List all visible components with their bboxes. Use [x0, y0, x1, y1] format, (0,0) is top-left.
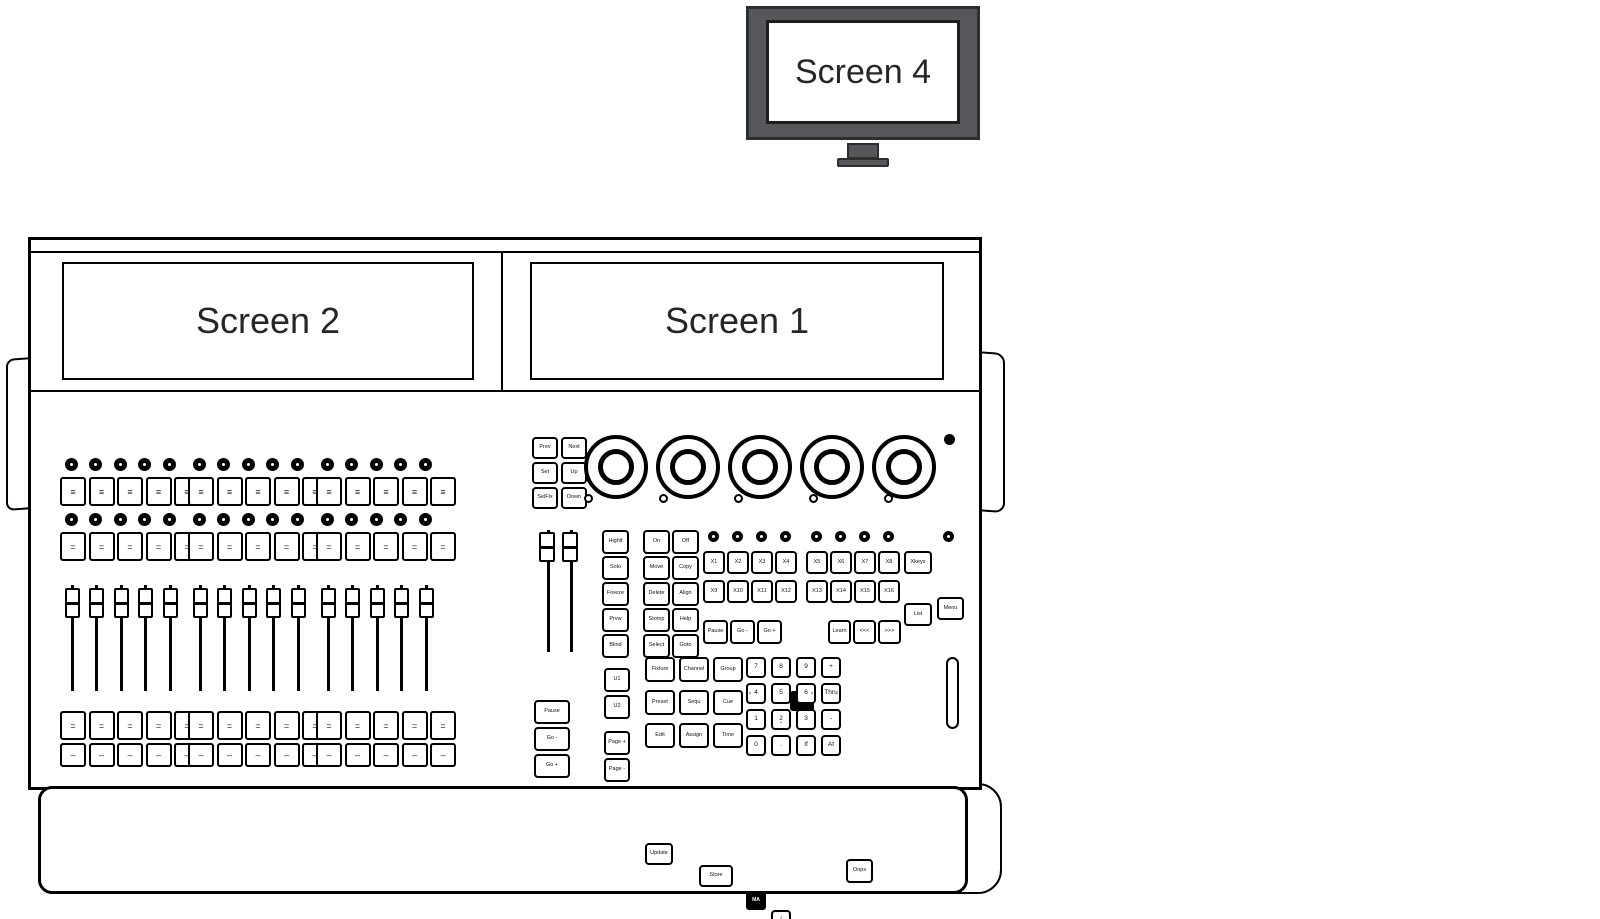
monitor-stand-base: [837, 158, 889, 167]
executor-knob-row-a: [65, 458, 176, 471]
executor-key[interactable]: =: [146, 532, 172, 561]
executor-key[interactable]: =: [60, 711, 86, 740]
external-monitor-label: Screen 4: [795, 53, 931, 92]
executor-knob[interactable]: [138, 458, 151, 471]
menu-key[interactable]: Menu: [937, 597, 964, 620]
fader-column: [134, 585, 159, 691]
encoder-inner-ring[interactable]: [598, 449, 634, 485]
mini-display-lines-icon: =: [284, 542, 289, 552]
master-go-key-pause[interactable]: Pause: [534, 700, 570, 724]
executor-led: [835, 531, 846, 542]
numpad-key-5[interactable]: 5: [771, 683, 791, 704]
executor-key-row-b: =====: [188, 532, 328, 561]
executor-knob[interactable]: [394, 513, 407, 526]
fader[interactable]: [291, 588, 306, 618]
command-key-stomp[interactable]: Stomp: [643, 608, 670, 632]
console-top-edge-line: [28, 251, 982, 253]
executor-key-row-c: =====: [60, 711, 200, 740]
sequence-key-go[interactable]: Go -: [730, 620, 755, 644]
mini-display-lines-icon: =: [355, 721, 360, 731]
executor-knob[interactable]: [163, 513, 176, 526]
executor-led: [732, 531, 743, 542]
mini-display-lines-icon: –: [227, 750, 232, 760]
command-key-blind[interactable]: Blind: [602, 634, 629, 658]
fader-column: [316, 585, 341, 691]
executor-knob-row-a: [321, 458, 432, 471]
executor-key[interactable]: =: [430, 532, 456, 561]
mini-display-lines-icon: =: [127, 542, 132, 552]
executor-key[interactable]: ≡: [89, 477, 115, 506]
x-key-x16[interactable]: X16: [878, 580, 900, 603]
fader-group-2: ≡≡≡≡≡==========–––––: [188, 455, 311, 769]
executor-key[interactable]: =: [89, 532, 115, 561]
page-key-page[interactable]: Page -: [604, 758, 630, 782]
numpad-key-blank[interactable]: .: [771, 735, 791, 756]
console-armrest: [38, 786, 968, 894]
executor-key[interactable]: ≡: [373, 477, 399, 506]
fader[interactable]: [242, 588, 257, 618]
update-key[interactable]: Update: [645, 843, 673, 865]
encoder-row: [584, 435, 936, 499]
executor-key[interactable]: –: [245, 743, 271, 767]
command-key-freeze[interactable]: Freeze: [602, 582, 629, 606]
executor-knob[interactable]: [419, 458, 432, 471]
executor-key[interactable]: ≡: [316, 477, 342, 506]
executor-key[interactable]: =: [146, 711, 172, 740]
executor-key[interactable]: =: [245, 532, 271, 561]
executor-key[interactable]: –: [345, 743, 371, 767]
dual-encoder-1[interactable]: [584, 435, 648, 499]
executor-knob[interactable]: [217, 458, 230, 471]
mini-display-lines-icon: =: [156, 721, 161, 731]
mini-display-lines-icon: –: [326, 750, 331, 760]
executor-led: [859, 531, 870, 542]
mini-display-lines-icon: =: [99, 721, 104, 731]
fader-group-3: ≡≡≡≡≡==========–––––: [316, 455, 439, 769]
command-key-goto[interactable]: Goto: [672, 634, 699, 658]
mini-display-lines-icon: ≡: [99, 487, 104, 497]
master-fader-b[interactable]: [562, 532, 578, 562]
numpad-key-9[interactable]: 9: [796, 657, 816, 678]
executor-key[interactable]: =: [345, 711, 371, 740]
executor-key[interactable]: ≡: [430, 477, 456, 506]
executor-knob[interactable]: [394, 458, 407, 471]
nav-key-selfix[interactable]: SelFix: [532, 487, 558, 509]
mini-display-lines-icon: –: [99, 750, 104, 760]
executor-key[interactable]: =: [373, 711, 399, 740]
mini-display-lines-icon: =: [198, 542, 203, 552]
encoder-inner-ring[interactable]: [814, 449, 850, 485]
numpad-key-8[interactable]: 8ˆ: [771, 657, 791, 678]
x-key-x11[interactable]: X11: [751, 580, 773, 603]
dual-encoder-4[interactable]: [800, 435, 864, 499]
executor-key[interactable]: =: [89, 711, 115, 740]
object-key-sequ[interactable]: Sequ: [679, 690, 709, 715]
master-go-key-go[interactable]: Go +: [534, 754, 570, 778]
executor-key[interactable]: –: [274, 743, 300, 767]
fader[interactable]: [217, 588, 232, 618]
fader[interactable]: [370, 588, 385, 618]
lighting-console-diagram: Screen 4 Screen 2 Screen 1 PrevNextSetUp…: [0, 0, 1600, 919]
encoder-nav-block: PrevNextSetUpSelFixDown: [532, 437, 587, 509]
x-key-x1[interactable]: X1: [703, 551, 725, 574]
xkeys-key[interactable]: Xkeys: [904, 551, 932, 574]
ma-key[interactable]: MA: [746, 891, 766, 910]
executor-key[interactable]: =: [245, 711, 271, 740]
fader[interactable]: [114, 588, 129, 618]
executor-led: [943, 531, 954, 542]
oops-key[interactable]: Oops: [846, 859, 873, 883]
fader-row: [316, 585, 439, 691]
fader-group-1: ≡≡≡≡≡==========–––––: [60, 455, 183, 769]
command-key-help[interactable]: Help: [672, 608, 699, 632]
mini-display-lines-icon: =: [326, 721, 331, 731]
mini-display-lines-icon: =: [383, 721, 388, 731]
x-keys-row2-left: X9X10X11X12: [703, 580, 797, 603]
mini-display-lines-icon: =: [440, 542, 445, 552]
executor-key-row-d: –––––: [60, 743, 200, 767]
x-key-x6[interactable]: X6: [830, 551, 852, 574]
external-monitor-display: Screen 4: [766, 20, 960, 124]
command-key-prvw[interactable]: Prvw: [602, 608, 629, 632]
numpad-key-0[interactable]: 0: [746, 735, 766, 756]
encoder-inner-ring[interactable]: [670, 449, 706, 485]
numpad-arrow-down-icon: ˇ: [780, 723, 782, 729]
fader-column: [390, 585, 415, 691]
executor-key[interactable]: =: [274, 711, 300, 740]
executor-key-row-c: =====: [316, 711, 456, 740]
executor-key-row-a: ≡≡≡≡≡: [60, 477, 200, 506]
fader-column: [286, 585, 311, 691]
executor-knob[interactable]: [419, 513, 432, 526]
executor-key[interactable]: ≡: [274, 477, 300, 506]
executor-led: [883, 531, 894, 542]
executor-knob[interactable]: [266, 513, 279, 526]
master-go-key-go[interactable]: Go -: [534, 727, 570, 751]
executor-key[interactable]: ≡: [245, 477, 271, 506]
executor-knob[interactable]: [242, 513, 255, 526]
user-key-u2[interactable]: U2: [604, 695, 630, 719]
encoder-inner-ring[interactable]: [886, 449, 922, 485]
x-key-x7[interactable]: X7: [854, 551, 876, 574]
executor-key[interactable]: –: [402, 743, 428, 767]
dual-encoder-2[interactable]: [656, 435, 720, 499]
x-key-x13[interactable]: X13: [806, 580, 828, 603]
fader-column: [365, 585, 390, 691]
sequence-go-row: PauseGo -Go +: [703, 620, 782, 644]
dual-encoder-3[interactable]: [728, 435, 792, 499]
mini-display-lines-icon: =: [255, 542, 260, 552]
executor-knob[interactable]: [345, 513, 358, 526]
fader[interactable]: [65, 588, 80, 618]
mini-display-lines-icon: =: [99, 542, 104, 552]
executor-knob[interactable]: [65, 458, 78, 471]
object-key-assign[interactable]: Assign: [679, 723, 709, 748]
mini-display-lines-icon: ≡: [198, 487, 203, 497]
mini-display-lines-icon: ≡: [70, 487, 75, 497]
fader[interactable]: [163, 588, 178, 618]
mini-display-lines-icon: –: [255, 750, 260, 760]
screen-deck-divider-line: [28, 390, 982, 392]
numpad-arrow-up-icon: ˆ: [780, 658, 782, 664]
command-key-select[interactable]: Select: [643, 634, 670, 658]
object-key-fixture[interactable]: Fixture: [645, 657, 675, 682]
x-key-x2[interactable]: X2: [727, 551, 749, 574]
fader-column: [237, 585, 262, 691]
executor-key[interactable]: =: [402, 711, 428, 740]
sequence-key-go[interactable]: Go +: [757, 620, 782, 644]
object-key-channel[interactable]: Channel: [679, 657, 709, 682]
page-key-page[interactable]: Page +: [604, 731, 630, 755]
executor-key[interactable]: =: [345, 532, 371, 561]
mini-display-lines-icon: –: [412, 750, 417, 760]
transport-key-blank[interactable]: <<<: [853, 620, 876, 644]
executor-key[interactable]: –: [373, 743, 399, 767]
executor-key[interactable]: –: [60, 743, 86, 767]
encoder-led: [659, 494, 668, 503]
mini-display-lines-icon: ≡: [440, 487, 445, 497]
fader[interactable]: [138, 588, 153, 618]
fader[interactable]: [266, 588, 281, 618]
mini-display-lines-icon: =: [255, 721, 260, 731]
executor-key[interactable]: =: [217, 711, 243, 740]
mini-display-lines-icon: ≡: [156, 487, 161, 497]
executor-key[interactable]: –: [316, 743, 342, 767]
mini-display-lines-icon: =: [156, 542, 161, 552]
fader-column: [158, 585, 183, 691]
executor-key[interactable]: ≡: [345, 477, 371, 506]
executor-key[interactable]: ≡: [188, 477, 214, 506]
console-screen-1-label: Screen 1: [665, 300, 809, 342]
mini-display-lines-icon: ≡: [284, 487, 289, 497]
x-key-x9[interactable]: X9: [703, 580, 725, 603]
command-column: HighltSoloFreezePrvwBlind: [602, 530, 629, 658]
executor-led: [708, 531, 719, 542]
transport-key-learn[interactable]: Learn: [828, 620, 851, 644]
numpad-key-7[interactable]: 7: [746, 657, 766, 678]
fader-column: [262, 585, 287, 691]
x-keys-row1-left: X1X2X3X4: [703, 551, 797, 574]
x-key-x3[interactable]: X3: [751, 551, 773, 574]
store-key[interactable]: Store: [699, 865, 733, 887]
executor-key-row-b: =====: [316, 532, 456, 561]
executor-key[interactable]: ≡: [117, 477, 143, 506]
mini-display-lines-icon: –: [383, 750, 388, 760]
object-key-cue[interactable]: Cue: [713, 690, 743, 715]
x-key-x15[interactable]: X15: [854, 580, 876, 603]
mini-display-lines-icon: ≡: [255, 487, 260, 497]
fader[interactable]: [89, 588, 104, 618]
fader-column: [414, 585, 439, 691]
executor-knob-row-b: [321, 513, 432, 526]
fader-column: [213, 585, 238, 691]
numpad-key-blank[interactable]: +: [821, 657, 841, 678]
fader[interactable]: [394, 588, 409, 618]
executor-key[interactable]: –: [188, 743, 214, 767]
object-key-edit[interactable]: Edit: [645, 723, 675, 748]
executor-key[interactable]: –: [430, 743, 456, 767]
command-key-off[interactable]: Off: [672, 530, 699, 554]
numpad-key-at[interactable]: At: [821, 735, 841, 756]
mini-display-lines-icon: –: [198, 750, 203, 760]
dual-encoder-5[interactable]: [872, 435, 936, 499]
executor-led: [756, 531, 767, 542]
mini-display-lines-icon: –: [127, 750, 132, 760]
mini-display-lines-icon: =: [383, 542, 388, 552]
mini-display-lines-icon: ≡: [227, 487, 232, 497]
executor-key[interactable]: =: [430, 711, 456, 740]
mini-display-lines-icon: –: [70, 750, 75, 760]
x-keys-row2-right: X13X14X15X16: [806, 580, 900, 603]
transport-row: Learn<<<>>>: [828, 620, 901, 644]
command-key-highlt[interactable]: Highlt: [602, 530, 629, 554]
executor-knob-row-a: [193, 458, 304, 471]
executor-key[interactable]: ≡: [146, 477, 172, 506]
nav-key-set[interactable]: Set: [532, 462, 558, 484]
encoder-led: [884, 494, 893, 503]
fader[interactable]: [193, 588, 208, 618]
executor-led: [811, 531, 822, 542]
executor-key[interactable]: ≡: [217, 477, 243, 506]
executor-key[interactable]: =: [117, 532, 143, 561]
numeric-keypad: 78ˆ9+4‹56›Thru12ˇ3-0.IfAt: [746, 657, 841, 756]
numpad-key-4[interactable]: 4‹: [746, 683, 766, 704]
encoder-led: [584, 494, 593, 503]
fader[interactable]: [419, 588, 434, 618]
executor-key[interactable]: =: [117, 711, 143, 740]
fader-column: [85, 585, 110, 691]
sequence-key-pause[interactable]: Pause: [703, 620, 728, 644]
executor-knob[interactable]: [163, 458, 176, 471]
mini-display-lines-icon: =: [227, 542, 232, 552]
fader-column: [60, 585, 85, 691]
object-key-group[interactable]: Group: [713, 657, 743, 682]
command-key-copy[interactable]: Copy: [672, 556, 699, 580]
executor-key[interactable]: =: [60, 532, 86, 561]
executor-knob[interactable]: [291, 458, 304, 471]
fader-column: [188, 585, 213, 691]
encoder-led: [734, 494, 743, 503]
transport-key-blank[interactable]: >>>: [878, 620, 901, 644]
executor-knob[interactable]: [114, 513, 127, 526]
level-wheel[interactable]: [946, 657, 959, 729]
executor-key[interactable]: =: [373, 532, 399, 561]
console-screen-2[interactable]: Screen 2: [62, 262, 474, 380]
x-keys-row1-right: X5X6X7X8: [806, 551, 900, 574]
numpad-key-thru[interactable]: Thru: [821, 683, 841, 704]
x-key-x4[interactable]: X4: [775, 551, 797, 574]
command-key-align[interactable]: Align: [672, 582, 699, 606]
executor-knob[interactable]: [114, 458, 127, 471]
executor-key[interactable]: –: [89, 743, 115, 767]
fader[interactable]: [321, 588, 336, 618]
x-key-x14[interactable]: X14: [830, 580, 852, 603]
executor-knob[interactable]: [242, 458, 255, 471]
executor-knob[interactable]: [321, 458, 334, 471]
executor-key[interactable]: ≡: [402, 477, 428, 506]
executor-key[interactable]: =: [316, 532, 342, 561]
x-key-x10[interactable]: X10: [727, 580, 749, 603]
executor-knob[interactable]: [266, 458, 279, 471]
executor-key[interactable]: =: [188, 532, 214, 561]
fader-column: [341, 585, 366, 691]
mini-display-lines-icon: =: [440, 721, 445, 731]
executor-key-row-d: –––––: [316, 743, 456, 767]
executor-knob[interactable]: [89, 513, 102, 526]
executor-knob[interactable]: [193, 513, 206, 526]
x-key-x12[interactable]: X12: [775, 580, 797, 603]
executor-key[interactable]: =: [316, 711, 342, 740]
nav-key-prev[interactable]: Prev: [532, 437, 558, 459]
executor-key[interactable]: –: [217, 743, 243, 767]
mini-display-lines-icon: ≡: [355, 487, 360, 497]
executor-knob[interactable]: [370, 458, 383, 471]
executor-key[interactable]: =: [274, 532, 300, 561]
numpad-key-if[interactable]: If: [796, 735, 816, 756]
object-key-time[interactable]: Time: [713, 723, 743, 748]
numpad-key-1[interactable]: 1: [746, 709, 766, 730]
command-key-on[interactable]: On: [643, 530, 670, 554]
executor-knob[interactable]: [89, 458, 102, 471]
numpad-key-2[interactable]: 2ˇ: [771, 709, 791, 730]
executor-led: [780, 531, 791, 542]
numpad-arrow-right-icon: ›: [811, 691, 813, 697]
executor-knob[interactable]: [193, 458, 206, 471]
command-key-solo[interactable]: Solo: [602, 556, 629, 580]
user-key-u1[interactable]: U1: [604, 668, 630, 692]
mini-display-lines-icon: =: [127, 721, 132, 731]
object-key-preset[interactable]: Preset: [645, 690, 675, 715]
executor-key[interactable]: –: [117, 743, 143, 767]
numpad-key-3[interactable]: 3: [796, 709, 816, 730]
console-screen-1[interactable]: Screen 1: [530, 262, 944, 380]
numpad-arrow-left-icon: ‹: [749, 691, 751, 697]
console-screen-2-label: Screen 2: [196, 300, 340, 342]
mini-display-lines-icon: –: [440, 750, 445, 760]
fader[interactable]: [345, 588, 360, 618]
numpad-key-blank[interactable]: -: [821, 709, 841, 730]
command-key-move[interactable]: Move: [643, 556, 670, 580]
executor-knob[interactable]: [138, 513, 151, 526]
executor-key[interactable]: =: [188, 711, 214, 740]
executor-key[interactable]: ≡: [60, 477, 86, 506]
executor-key[interactable]: =: [402, 532, 428, 561]
executor-knob[interactable]: [345, 458, 358, 471]
numpad-key-6[interactable]: 6›: [796, 683, 816, 704]
x-key-x8[interactable]: X8: [878, 551, 900, 574]
object-key-block: FixtureChannelGroupPresetSequCueEditAssi…: [645, 657, 743, 748]
executor-knob[interactable]: [291, 513, 304, 526]
x-key-x5[interactable]: X5: [806, 551, 828, 574]
mini-display-lines-icon: –: [284, 750, 289, 760]
executor-key[interactable]: =: [217, 532, 243, 561]
mini-display-lines-icon: ≡: [383, 487, 388, 497]
command-key-delete[interactable]: Delete: [643, 582, 670, 606]
fader-column: [109, 585, 134, 691]
master-fader-a[interactable]: [539, 532, 555, 562]
executor-key[interactable]: –: [146, 743, 172, 767]
slash-key[interactable]: /: [771, 910, 791, 919]
executor-knob[interactable]: [370, 513, 383, 526]
mini-display-lines-icon: =: [198, 721, 203, 731]
mini-display-lines-icon: =: [227, 721, 232, 731]
list-key[interactable]: List: [904, 603, 932, 626]
executor-knob[interactable]: [65, 513, 78, 526]
encoder-inner-ring[interactable]: [742, 449, 778, 485]
executor-knob[interactable]: [321, 513, 334, 526]
executor-knob[interactable]: [217, 513, 230, 526]
command-pair-block: OnOffMoveCopyDeleteAlignStompHelpSelectG…: [643, 530, 699, 658]
